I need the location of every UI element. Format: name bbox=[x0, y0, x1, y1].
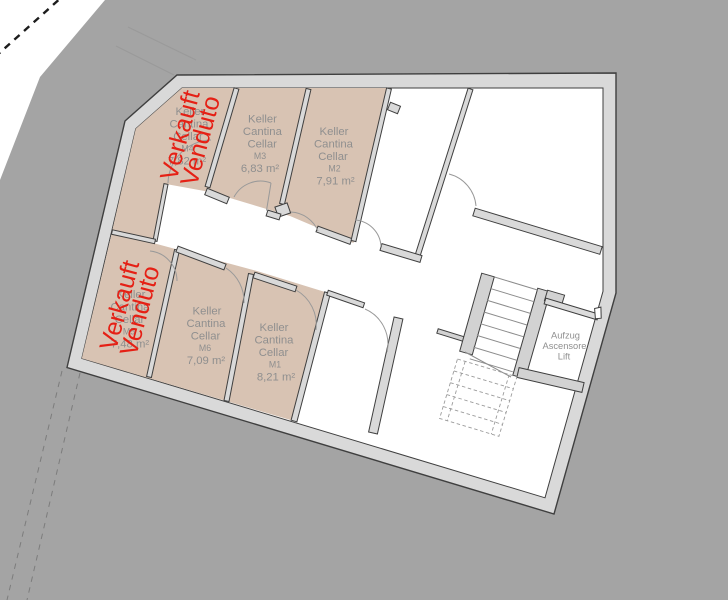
svg-text:7,09 m²: 7,09 m² bbox=[187, 355, 226, 367]
svg-text:Keller: Keller bbox=[320, 126, 349, 138]
svg-text:Cellar: Cellar bbox=[259, 347, 289, 359]
svg-text:Aufzug: Aufzug bbox=[551, 331, 580, 341]
svg-text:7,91 m²: 7,91 m² bbox=[316, 176, 355, 188]
svg-text:M3: M3 bbox=[254, 151, 266, 161]
svg-text:Cantina: Cantina bbox=[187, 318, 227, 330]
svg-text:M2: M2 bbox=[328, 164, 340, 174]
svg-text:M1: M1 bbox=[269, 360, 281, 370]
svg-text:Cellar: Cellar bbox=[247, 138, 277, 150]
svg-text:Cantina: Cantina bbox=[255, 334, 295, 346]
svg-text:Ascensore: Ascensore bbox=[543, 341, 587, 351]
svg-text:6,83 m²: 6,83 m² bbox=[241, 163, 280, 175]
svg-text:Cantina: Cantina bbox=[314, 138, 354, 150]
svg-text:M6: M6 bbox=[199, 343, 211, 353]
svg-text:8,21 m²: 8,21 m² bbox=[257, 372, 296, 384]
svg-text:Keller: Keller bbox=[260, 322, 289, 334]
svg-text:Lift: Lift bbox=[558, 352, 571, 362]
svg-text:Cantina: Cantina bbox=[243, 126, 283, 138]
svg-text:Keller: Keller bbox=[248, 114, 277, 126]
svg-text:Keller: Keller bbox=[193, 306, 222, 318]
svg-text:Cellar: Cellar bbox=[318, 151, 348, 163]
svg-text:Cellar: Cellar bbox=[191, 330, 221, 342]
